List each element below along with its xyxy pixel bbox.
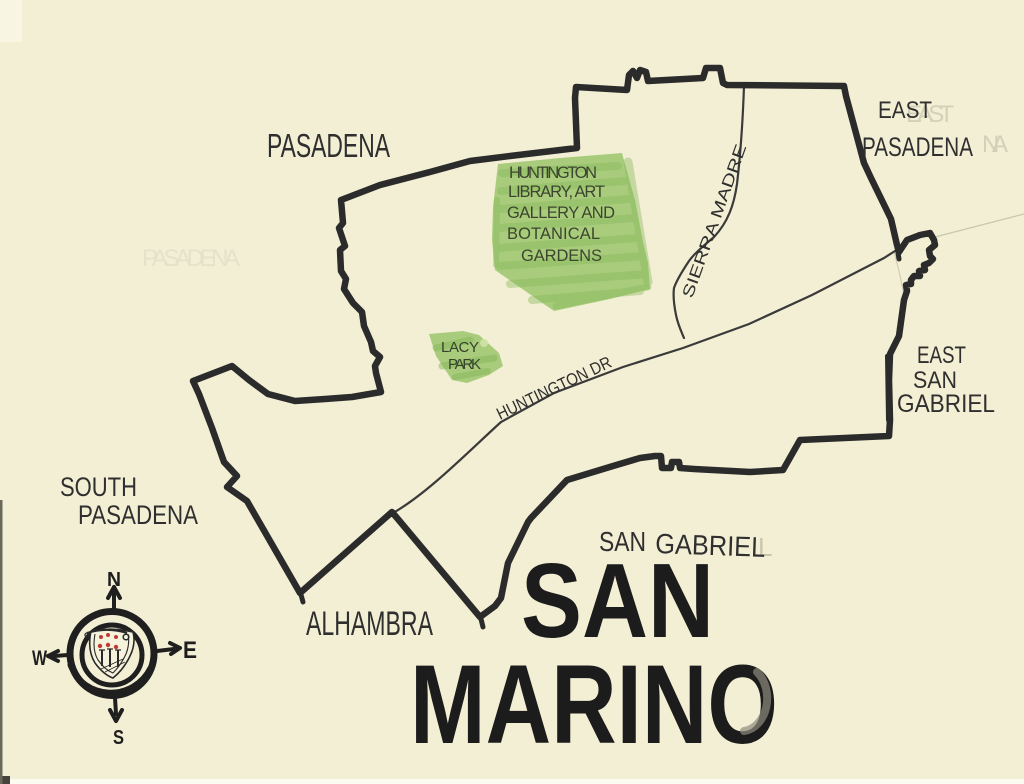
svg-text:PASADENA: PASADENA	[78, 500, 198, 530]
svg-text:EAST: EAST	[878, 97, 932, 124]
svg-text:LACY: LACY	[441, 339, 479, 356]
svg-text:W: W	[32, 647, 47, 670]
svg-text:GARDENS: GARDENS	[521, 247, 602, 265]
svg-text:SOUTH: SOUTH	[60, 472, 137, 502]
svg-text:PASADENA: PASADENA	[142, 245, 242, 272]
svg-text:EAST: EAST	[917, 342, 966, 369]
svg-text:HUNTINGTON: HUNTINGTON	[509, 164, 597, 182]
svg-text:PASADENA: PASADENA	[862, 132, 973, 162]
svg-text:N: N	[107, 569, 121, 591]
svg-text:PARK: PARK	[448, 356, 481, 373]
svg-text:MARINO: MARINO	[410, 642, 778, 767]
svg-text:GABRIEL: GABRIEL	[897, 390, 995, 418]
svg-text:E: E	[183, 637, 197, 664]
svg-text:PASADENA: PASADENA	[267, 127, 390, 164]
svg-text:LIBRARY, ART: LIBRARY, ART	[508, 183, 605, 201]
svg-text:BOTANICAL: BOTANICAL	[507, 225, 600, 243]
svg-text:NA: NA	[982, 131, 1010, 158]
svg-text:GALLERY AND: GALLERY AND	[507, 204, 615, 222]
svg-text:ALHAMBRA: ALHAMBRA	[306, 605, 433, 643]
svg-text:S: S	[113, 727, 124, 749]
